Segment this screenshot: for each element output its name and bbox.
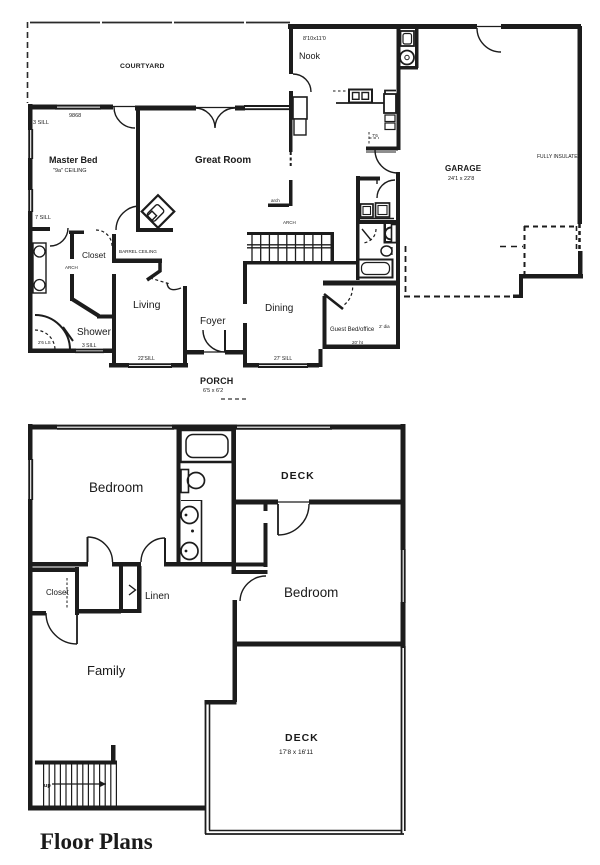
svg-text:Foyer: Foyer [200, 316, 226, 327]
svg-text:"9a" CEILING: "9a" CEILING [53, 168, 87, 174]
svg-text:17'8 x 16'11: 17'8 x 16'11 [279, 749, 314, 756]
svg-text:BARREL CEILING: BARREL CEILING [119, 249, 157, 254]
svg-text:ARCH: ARCH [65, 265, 78, 270]
svg-text:DECK: DECK [281, 470, 315, 482]
svg-text:8'10x11'0: 8'10x11'0 [303, 36, 326, 42]
svg-text:PORCH: PORCH [200, 376, 234, 386]
svg-text:Shower: Shower [77, 327, 112, 338]
svg-text:arch: arch [271, 198, 280, 203]
svg-text:Closet: Closet [82, 250, 106, 260]
svg-text:Living: Living [133, 299, 161, 311]
svg-text:Great Room: Great Room [195, 155, 251, 166]
svg-text:GARAGE: GARAGE [445, 164, 482, 173]
svg-text:24'1 x 22'8: 24'1 x 22'8 [448, 176, 474, 182]
svg-text:Dining: Dining [265, 303, 293, 314]
svg-text:FULLY INSULATED: FULLY INSULATED [537, 154, 582, 160]
svg-text:20' ht: 20' ht [352, 340, 364, 345]
svg-text:Family: Family [87, 663, 126, 678]
svg-text:Closet: Closet [46, 588, 69, 597]
svg-text:Bedroom: Bedroom [284, 585, 338, 600]
svg-text:3 SILL: 3 SILL [82, 343, 97, 349]
svg-text:27' SILL: 27' SILL [274, 356, 292, 362]
svg-text:7'6: 7'6 [372, 133, 378, 138]
svg-text:2' dia: 2' dia [379, 324, 390, 329]
svg-text:22'SILL: 22'SILL [138, 356, 155, 362]
svg-text:DECK: DECK [285, 732, 319, 744]
svg-text:Floor Plans: Floor Plans [40, 829, 153, 854]
svg-text:Guest Bed/office: Guest Bed/office [330, 327, 375, 333]
svg-text:Linen: Linen [145, 591, 169, 602]
svg-text:Bedroom: Bedroom [89, 480, 143, 495]
svg-text:COURTYARD: COURTYARD [120, 63, 165, 70]
svg-text:up: up [44, 783, 51, 789]
svg-text:Master Bed: Master Bed [49, 155, 98, 165]
svg-text:ARCH: ARCH [283, 220, 296, 225]
svg-text:2'6 LS: 2'6 LS [38, 340, 51, 345]
svg-text:Nook: Nook [299, 51, 321, 61]
svg-text:7 SILL: 7 SILL [35, 215, 51, 221]
svg-text:6'5 x 6'2: 6'5 x 6'2 [203, 388, 223, 394]
svg-text:3 SILL: 3 SILL [33, 120, 49, 126]
svg-text:9868: 9868 [69, 113, 81, 119]
